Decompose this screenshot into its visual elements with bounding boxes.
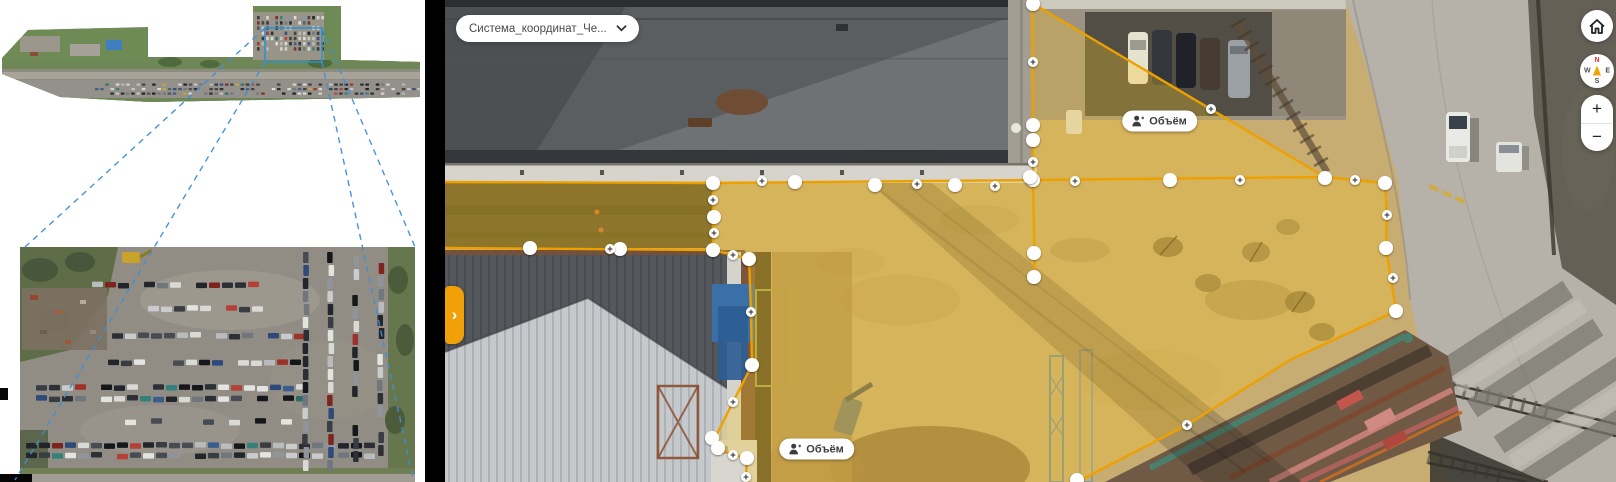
volume-person-icon (788, 443, 801, 456)
midpoint-add-handle[interactable] (1382, 210, 1392, 220)
midpoint-add-handle[interactable] (728, 250, 738, 260)
midpoint-add-handle[interactable] (708, 195, 718, 205)
vertex-handle[interactable] (742, 252, 756, 266)
compass-west-label: W (1584, 68, 1591, 75)
vertex-handle[interactable] (707, 210, 721, 224)
midpoint-add-handle[interactable] (741, 472, 751, 482)
midpoint-add-handle[interactable] (1028, 157, 1038, 167)
app: Система_координат_Че... › Объём Объём N … (0, 0, 1616, 482)
vertex-handle[interactable] (711, 441, 725, 455)
panel-divider (425, 0, 445, 482)
midpoint-add-handle[interactable] (1070, 176, 1080, 186)
vertex-handle[interactable] (613, 242, 627, 256)
zoom-control: + − (1581, 95, 1613, 151)
midpoint-add-handle[interactable] (605, 244, 615, 254)
compass-north-label: N (1594, 57, 1599, 64)
compass-south-label: S (1595, 78, 1600, 85)
vertex-handle[interactable] (1378, 176, 1392, 190)
vertex-handle[interactable] (1027, 270, 1041, 284)
chevron-right-icon: › (452, 305, 458, 325)
vertex-handle[interactable] (523, 241, 537, 255)
home-icon (1589, 19, 1605, 34)
crs-selector-dropdown[interactable]: Система_координат_Че... (456, 15, 639, 42)
vertex-handle[interactable] (1026, 133, 1040, 147)
vertex-handle[interactable] (1023, 170, 1037, 184)
midpoint-add-handle[interactable] (1235, 175, 1245, 185)
vertex-handle[interactable] (1318, 171, 1332, 185)
midpoint-add-handle[interactable] (709, 228, 719, 238)
vertex-handle[interactable] (706, 176, 720, 190)
measurement-polygon-fill[interactable] (445, 3, 1396, 482)
vertex-handle[interactable] (868, 178, 882, 192)
volume-annotation-label[interactable]: Объём (779, 439, 854, 460)
volume-annotation-label[interactable]: Объём (1122, 111, 1197, 132)
midpoint-add-handle[interactable] (728, 450, 738, 460)
chevron-down-icon (616, 25, 627, 32)
vertex-handle[interactable] (1163, 173, 1177, 187)
compass-needle-icon (1593, 66, 1601, 76)
midpoint-add-handle[interactable] (1182, 420, 1192, 430)
midpoint-add-handle[interactable] (1350, 175, 1360, 185)
zoom-in-button[interactable]: + (1581, 95, 1613, 124)
vertex-handle[interactable] (1026, 118, 1040, 132)
vertex-handle[interactable] (1027, 246, 1041, 260)
vertex-handle[interactable] (1379, 241, 1393, 255)
volume-person-icon (1131, 115, 1144, 128)
vertex-handle[interactable] (745, 358, 759, 372)
overview-orthophoto (0, 0, 425, 110)
compass-control[interactable]: N W E S (1580, 54, 1614, 88)
home-button[interactable] (1581, 10, 1613, 42)
vertex-handle[interactable] (788, 175, 802, 189)
vertex-handle[interactable] (740, 451, 754, 465)
midpoint-add-handle[interactable] (757, 176, 767, 186)
vertex-handle[interactable] (948, 178, 962, 192)
panel-artifact (0, 388, 8, 400)
crs-selector-label: Система_координат_Че... (469, 23, 607, 35)
midpoint-add-handle[interactable] (912, 179, 922, 189)
midpoint-add-handle[interactable] (1206, 104, 1216, 114)
midpoint-add-handle[interactable] (746, 307, 756, 317)
panel-expand-tab[interactable]: › (445, 286, 464, 344)
midpoint-add-handle[interactable] (728, 397, 738, 407)
midpoint-add-handle[interactable] (1388, 273, 1398, 283)
vertex-handle[interactable] (1389, 304, 1403, 318)
vertex-handle[interactable] (706, 243, 720, 257)
midpoint-add-handle[interactable] (990, 181, 1000, 191)
compass-east-label: E (1605, 68, 1610, 75)
parking-lot-photo (20, 247, 415, 482)
midpoint-add-handle[interactable] (1028, 57, 1038, 67)
context-panel (0, 0, 425, 482)
